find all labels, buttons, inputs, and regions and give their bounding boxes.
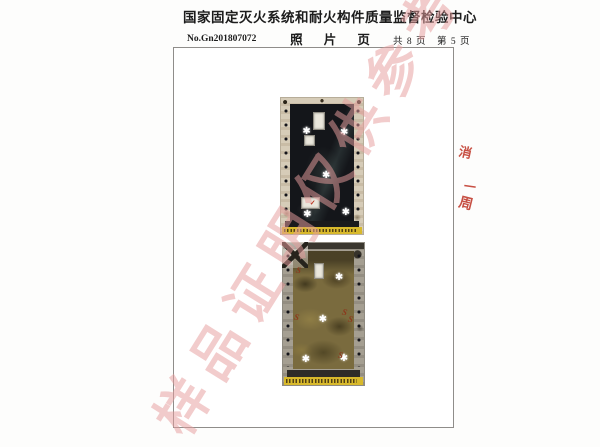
photo-label-patch [314,263,324,279]
photo-caption-strip [284,377,363,385]
splat-mark: ✱ [340,128,348,138]
splat-mark: ✱ [302,355,310,365]
splat-mark: ✱ [322,171,330,181]
frame-bolts-right [357,253,361,367]
door-sill-shadow [287,370,360,377]
splat-mark: ✱ [302,127,310,137]
splat-mark: ✱ [335,273,343,283]
photo-caption-strip [282,227,362,234]
photo-label-patch [313,112,325,130]
splat-mark: ✱ [319,315,327,325]
splat-mark: ✱ [303,210,311,220]
photo-door-after-test: ✱✱✱✱SSSSS [282,242,365,386]
scanned-report-page: 国家固定灭火系统和耐火构件质量监督检验中心 照 片 页 No.Gn2018070… [0,0,600,447]
frame-bolts-left [284,108,288,216]
photo-door-before-test: ✱✱✱✱✱✓ [280,97,364,235]
page-count-info: 共 8 页 第 5 页 [393,33,457,47]
red-tick-mark: ✓ [310,200,316,207]
frame-bolts-right [356,108,360,216]
splat-mark: ✱ [342,208,350,218]
handwritten-mark-1: 消 [457,141,474,162]
report-number: No.Gn201807072 [187,34,256,44]
handwritten-mark-3: 周 [457,192,475,215]
center-name-title: 国家固定灭火系统和耐火构件质量监督检验中心 [172,6,488,26]
frame-bolts-left [286,253,290,367]
